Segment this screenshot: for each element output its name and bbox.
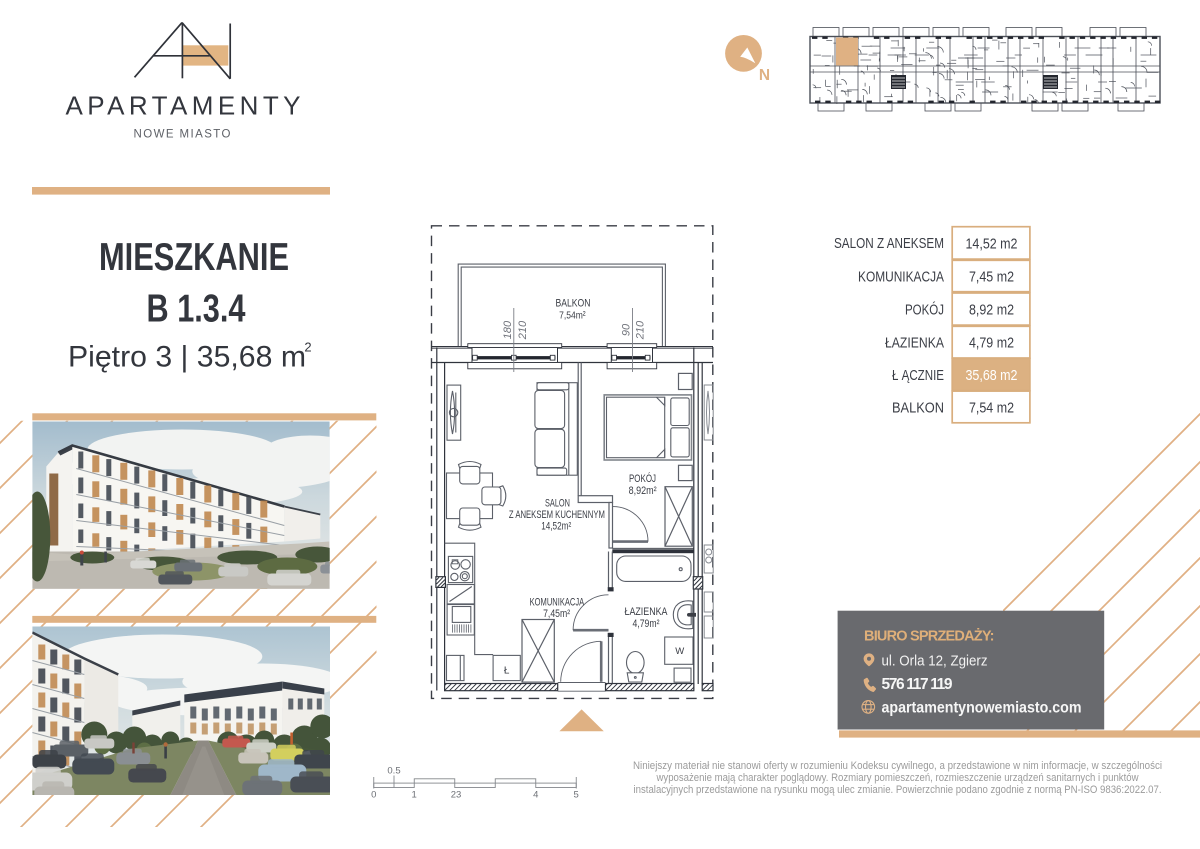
svg-text:ul. Orla 12, Zgierz: ul. Orla 12, Zgierz <box>882 653 988 670</box>
svg-text:Ł ĄCZNIE: Ł ĄCZNIE <box>892 368 944 384</box>
svg-text:8,92 m2: 8,92 m2 <box>969 302 1014 319</box>
svg-text:B 1.3.4: B 1.3.4 <box>147 288 246 331</box>
svg-text:ŁAZIENKA: ŁAZIENKA <box>885 336 944 352</box>
svg-text:0.5: 0.5 <box>387 766 400 777</box>
svg-text:Ł: Ł <box>504 666 510 677</box>
svg-text:180: 180 <box>502 320 514 339</box>
svg-text:Z ANEKSEM KUCHENNYM: Z ANEKSEM KUCHENNYM <box>509 509 605 521</box>
svg-text:APARTAMENTY: APARTAMENTY <box>66 91 301 121</box>
svg-text:35,68 m2: 35,68 m2 <box>966 367 1018 384</box>
svg-text:W: W <box>675 646 684 657</box>
svg-text:BALKON: BALKON <box>556 298 591 310</box>
svg-text:576 117 119: 576 117 119 <box>882 676 953 693</box>
svg-text:Niniejszy materiał nie stanowi: Niniejszy materiał nie stanowi oferty w … <box>633 760 1162 772</box>
svg-text:POKÓJ: POKÓJ <box>905 301 944 318</box>
svg-text:5: 5 <box>574 790 579 801</box>
svg-text:8,92m²: 8,92m² <box>629 485 657 497</box>
svg-text:14,52m²: 14,52m² <box>541 520 571 532</box>
svg-text:BIURO SPRZEDAŻY:: BIURO SPRZEDAŻY: <box>864 628 995 645</box>
svg-text:7,45 m2: 7,45 m2 <box>969 269 1014 286</box>
svg-text:KOMUNIKACJA: KOMUNIKACJA <box>530 596 585 608</box>
svg-text:7,45m²: 7,45m² <box>543 608 570 620</box>
svg-text:7,54m²: 7,54m² <box>559 310 586 321</box>
svg-text:0: 0 <box>371 790 376 801</box>
svg-text:1: 1 <box>412 790 417 801</box>
svg-text:14,52 m2: 14,52 m2 <box>966 235 1018 252</box>
svg-text:instalacyjnych przedstawione n: instalacyjnych przedstawione na rysunku … <box>634 784 1162 796</box>
svg-text:4,79m²: 4,79m² <box>633 618 660 630</box>
svg-text:NOWE MIASTO: NOWE MIASTO <box>134 129 231 141</box>
svg-text:7,54 m2: 7,54 m2 <box>969 400 1014 417</box>
svg-text:POKÓJ: POKÓJ <box>629 472 656 485</box>
svg-text:SALON Z ANEKSEM: SALON Z ANEKSEM <box>834 236 944 252</box>
svg-text:wyposażenie mają charakter pog: wyposażenie mają charakter poglądowy. Ro… <box>656 772 1139 784</box>
svg-text:SALON: SALON <box>545 498 570 510</box>
svg-text:4: 4 <box>533 790 538 801</box>
svg-text:210: 210 <box>517 320 529 340</box>
svg-text:4,79 m2: 4,79 m2 <box>969 335 1014 352</box>
svg-text:90: 90 <box>621 323 633 336</box>
svg-text:210: 210 <box>635 320 647 340</box>
svg-text:KOMUNIKACJA: KOMUNIKACJA <box>858 269 944 285</box>
svg-text:ŁAZIENKA: ŁAZIENKA <box>625 606 669 618</box>
svg-text:apartamentynowemiasto.com: apartamentynowemiasto.com <box>882 700 1082 717</box>
svg-text:N: N <box>759 67 770 84</box>
svg-text:2: 2 <box>304 340 311 355</box>
svg-text:BALKON: BALKON <box>892 400 944 416</box>
svg-text:Piętro 3 | 35,68 m: Piętro 3 | 35,68 m <box>68 340 306 373</box>
svg-text:23: 23 <box>451 790 462 801</box>
svg-text:MIESZKANIE: MIESZKANIE <box>99 236 289 279</box>
